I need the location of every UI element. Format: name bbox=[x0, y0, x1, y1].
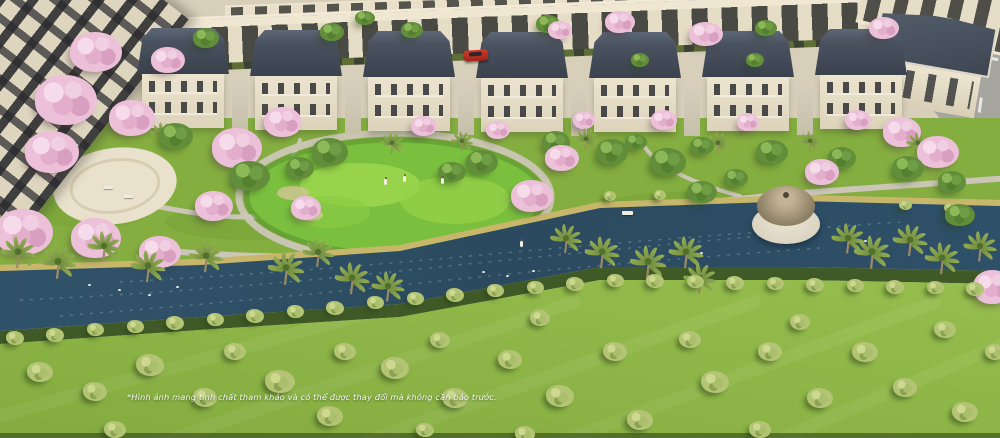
shrub bbox=[654, 190, 666, 199]
shrub bbox=[646, 274, 664, 288]
sakura-tree bbox=[25, 131, 79, 173]
bird bbox=[506, 275, 509, 277]
palm-tree bbox=[186, 243, 226, 276]
palm-tree bbox=[332, 265, 372, 298]
sakura-tree bbox=[805, 159, 839, 185]
waterside-gazebo bbox=[750, 186, 822, 244]
shrub bbox=[527, 281, 544, 294]
shrub bbox=[679, 331, 701, 348]
green-tree bbox=[312, 138, 348, 166]
shrub bbox=[515, 426, 535, 438]
palm-tree bbox=[922, 245, 962, 278]
disclaimer-text: *Hình ảnh mang tính chất tham khảo và có… bbox=[127, 392, 472, 402]
sakura-tree bbox=[605, 11, 635, 33]
villa-roof bbox=[476, 32, 568, 78]
sakura-tree bbox=[545, 145, 579, 171]
driveway bbox=[458, 85, 474, 135]
sakura-tree bbox=[511, 180, 553, 212]
shrub bbox=[604, 191, 616, 200]
palm-tree bbox=[379, 134, 406, 157]
shrub bbox=[952, 402, 978, 422]
green-tree bbox=[466, 150, 498, 174]
green-tree bbox=[746, 53, 764, 67]
bird bbox=[864, 240, 867, 242]
shrub bbox=[207, 313, 224, 326]
green-tree bbox=[193, 28, 219, 48]
shrub bbox=[607, 274, 624, 287]
shrub bbox=[927, 281, 944, 294]
shrub bbox=[6, 331, 24, 345]
person-figure bbox=[403, 176, 406, 182]
green-tree bbox=[755, 20, 777, 36]
shrub bbox=[430, 332, 450, 348]
sakura-tree bbox=[486, 121, 510, 139]
shrub bbox=[627, 410, 653, 430]
sakura-tree bbox=[151, 47, 185, 73]
shrub bbox=[27, 362, 53, 382]
shrub bbox=[334, 343, 356, 360]
shrub bbox=[893, 378, 917, 397]
palm-tree bbox=[851, 238, 892, 273]
driveway bbox=[345, 84, 361, 134]
shrub bbox=[847, 279, 864, 292]
bird bbox=[176, 286, 179, 288]
sakura-tree bbox=[651, 110, 677, 130]
person-figure bbox=[384, 179, 387, 185]
palm-tree bbox=[0, 239, 38, 272]
villa-building bbox=[363, 31, 455, 137]
palm-tree bbox=[37, 248, 78, 283]
green-tree bbox=[724, 169, 748, 187]
driveway bbox=[232, 82, 248, 132]
green-tree bbox=[687, 181, 717, 203]
palm-tree bbox=[265, 254, 306, 289]
shrub bbox=[83, 382, 107, 401]
sakura-tree bbox=[737, 113, 759, 131]
shrub bbox=[767, 277, 784, 290]
shrub bbox=[498, 350, 522, 369]
shrub bbox=[790, 314, 810, 330]
aerial-render: *Hình ảnh mang tính chất tham khảo và có… bbox=[0, 0, 1000, 438]
bird bbox=[88, 284, 91, 286]
shrub bbox=[852, 342, 878, 362]
shrub bbox=[546, 385, 574, 407]
green-tree bbox=[401, 22, 423, 38]
palm-tree bbox=[548, 226, 584, 256]
bird bbox=[148, 294, 151, 296]
sakura-tree bbox=[291, 196, 321, 220]
villa-wall bbox=[368, 77, 450, 131]
sakura-tree bbox=[869, 17, 899, 39]
green-tree bbox=[631, 53, 649, 67]
shrub bbox=[265, 370, 295, 393]
shrub bbox=[530, 310, 550, 326]
shrub bbox=[806, 278, 824, 292]
shrub bbox=[246, 309, 264, 323]
sakura-tree bbox=[548, 21, 572, 39]
green-tree bbox=[892, 156, 924, 180]
shrub bbox=[46, 328, 64, 342]
bench bbox=[622, 211, 633, 215]
palm-tree bbox=[961, 233, 999, 265]
shrub bbox=[317, 406, 343, 426]
shrub bbox=[487, 284, 504, 297]
shrub bbox=[701, 371, 729, 393]
sakura-tree bbox=[573, 111, 595, 129]
shrub bbox=[966, 282, 984, 296]
bird bbox=[118, 289, 121, 291]
palm-tree bbox=[582, 239, 622, 272]
shrub bbox=[934, 321, 956, 338]
sakura-tree bbox=[195, 191, 233, 221]
bird bbox=[700, 252, 703, 254]
sakura-tree bbox=[264, 107, 302, 137]
shrub bbox=[416, 423, 434, 437]
driveway bbox=[797, 85, 813, 135]
bench bbox=[104, 186, 113, 189]
person-figure bbox=[520, 241, 523, 247]
shrub bbox=[104, 421, 126, 438]
shrub bbox=[899, 200, 912, 210]
shrub bbox=[603, 342, 627, 361]
palm-tree bbox=[128, 253, 168, 286]
shrub bbox=[407, 292, 424, 305]
shrub bbox=[326, 301, 344, 315]
green-tree bbox=[320, 23, 344, 41]
shrub bbox=[381, 357, 409, 379]
green-tree bbox=[625, 134, 647, 150]
sakura-tree bbox=[845, 110, 871, 130]
shrub bbox=[807, 388, 833, 408]
sakura-tree bbox=[689, 22, 723, 46]
green-tree bbox=[690, 137, 714, 155]
shrub bbox=[136, 354, 164, 376]
sakura-tree bbox=[35, 75, 97, 125]
palm-tree bbox=[797, 133, 822, 154]
shrub bbox=[758, 342, 782, 361]
shrub bbox=[127, 320, 144, 333]
bird bbox=[532, 270, 535, 272]
sakura-tree bbox=[917, 136, 959, 168]
shrub bbox=[287, 305, 304, 318]
green-tree bbox=[756, 140, 788, 164]
green-tree bbox=[159, 123, 193, 149]
shrub bbox=[985, 344, 1000, 360]
driveway bbox=[684, 86, 700, 136]
green-tree bbox=[596, 139, 628, 165]
palm-tree bbox=[449, 133, 474, 154]
shrub bbox=[87, 323, 104, 336]
shrub bbox=[446, 288, 464, 302]
gazebo-roof-apex bbox=[783, 192, 789, 198]
shrub bbox=[566, 277, 584, 291]
red-car bbox=[464, 49, 489, 62]
person-figure bbox=[441, 178, 444, 184]
shrub bbox=[224, 343, 246, 360]
shrub bbox=[687, 275, 704, 288]
shrub bbox=[886, 280, 904, 294]
sakura-tree bbox=[411, 116, 437, 136]
shrub bbox=[166, 316, 184, 330]
bottom-edge-shade bbox=[0, 433, 1000, 438]
green-tree bbox=[945, 204, 975, 226]
green-tree bbox=[650, 148, 686, 176]
green-tree bbox=[230, 161, 270, 191]
palm-tree bbox=[85, 233, 123, 265]
sakura-tree bbox=[70, 32, 122, 72]
shrub bbox=[726, 276, 744, 290]
bench bbox=[124, 195, 133, 198]
green-tree bbox=[938, 171, 966, 193]
green-tree bbox=[286, 157, 314, 179]
green-tree bbox=[355, 11, 375, 25]
shrub bbox=[367, 296, 384, 309]
shrub bbox=[749, 421, 771, 438]
bird bbox=[482, 271, 485, 273]
